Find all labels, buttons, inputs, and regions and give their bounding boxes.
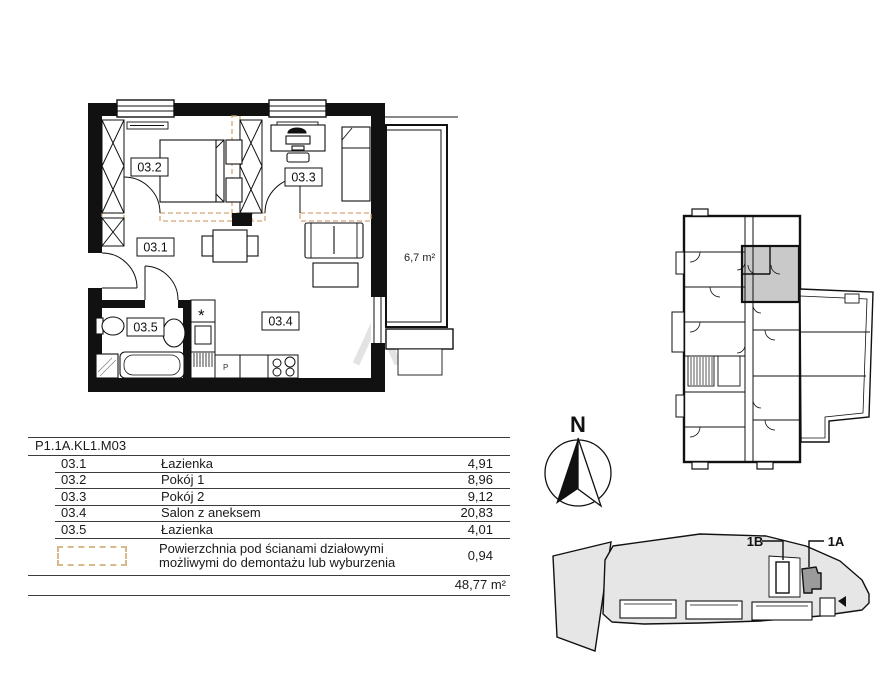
room-area: 4,91	[423, 457, 510, 471]
room-number: 03.2	[55, 473, 161, 487]
room-name: Salon z aneksem	[161, 506, 423, 520]
table-row: 03.3 Pokój 2 9,12	[55, 489, 510, 506]
total-area: 48,77 m²	[455, 578, 506, 592]
room-area: 20,83	[423, 506, 510, 520]
room-number: 03.3	[55, 490, 161, 504]
room-number: 03.5	[55, 523, 161, 537]
desk-and-bed	[271, 125, 370, 201]
double-bed	[160, 140, 242, 202]
sofa	[305, 223, 363, 287]
demolishable-swatch	[57, 546, 127, 566]
floor-plan-page: 6,7 m²	[0, 0, 887, 680]
highlighted-unit	[742, 246, 799, 302]
compass: N	[535, 400, 625, 520]
room-area: 4,01	[423, 523, 510, 537]
room-label-03-4: 03.4	[268, 315, 292, 329]
unit-code-row: P1.1A.KL1.M03	[28, 438, 510, 456]
room-label-03-3: 03.3	[291, 171, 315, 185]
washer-symbol: *	[198, 306, 205, 325]
room-label-03-1: 03.1	[143, 241, 167, 255]
dishwasher-label: P	[223, 363, 228, 372]
table-row: 03.4 Salon z aneksem 20,83	[55, 506, 510, 523]
table-row: 03.5 Łazienka 4,01	[55, 522, 510, 539]
balcony-step	[398, 349, 442, 375]
table-row: 03.2 Pokój 1 8,96	[55, 473, 510, 490]
dining-table	[202, 230, 258, 262]
room-number: 03.1	[55, 457, 161, 471]
room-name: Łazienka	[161, 457, 423, 471]
unit-code: P1.1A.KL1.M03	[35, 439, 126, 453]
room-label-03-2: 03.2	[137, 161, 161, 175]
north-label: N	[570, 412, 586, 437]
site-building-west	[553, 542, 611, 651]
north-arrow-right	[578, 438, 601, 506]
wall-junction	[232, 213, 252, 226]
site-label-1b: 1B	[747, 534, 764, 549]
balcony-door	[371, 297, 385, 343]
demolishable-area: 0,94	[429, 549, 510, 563]
area-table: P1.1A.KL1.M03 03.1 Łazienka 4,91 03.2 Po…	[28, 437, 510, 596]
balcony-slab	[386, 329, 453, 349]
room-area: 8,96	[423, 473, 510, 487]
coffee-table	[313, 263, 358, 287]
room-name: Łazienka	[161, 523, 423, 537]
room-name: Pokój 1	[161, 473, 423, 487]
demolishable-note: Powierzchnia pod ścianami działowymi moż…	[159, 542, 429, 571]
table-row: 03.1 Łazienka 4,91	[55, 456, 510, 473]
site-building-1b	[776, 562, 789, 593]
terrace-outline	[800, 289, 873, 442]
room-name: Pokój 2	[161, 490, 423, 504]
apartment-floor-plan: 6,7 m²	[85, 95, 465, 400]
site-plan: 1B 1A	[540, 525, 887, 670]
site-label-1a: 1A	[828, 534, 845, 549]
room-label-03-5: 03.5	[133, 321, 157, 335]
total-row: 48,77 m²	[28, 576, 510, 596]
room-area: 9,12	[423, 490, 510, 504]
building-key-plan	[660, 200, 887, 480]
balcony-area-label: 6,7 m²	[404, 252, 436, 264]
north-arrow-left	[556, 438, 578, 504]
demolishable-note-row: Powierzchnia pod ścianami działowymi moż…	[55, 539, 510, 575]
balcony: 6,7 m²	[386, 125, 447, 327]
room-number: 03.4	[55, 506, 161, 520]
